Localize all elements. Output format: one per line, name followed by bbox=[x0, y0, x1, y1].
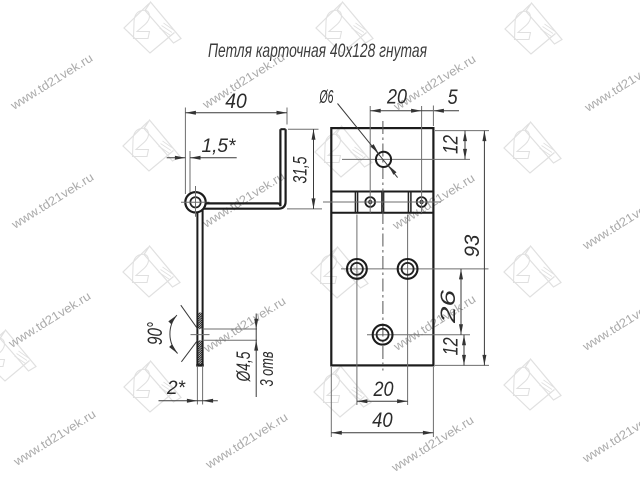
svg-text:Ø4,5: Ø4,5 bbox=[233, 351, 255, 382]
svg-text:31,5: 31,5 bbox=[290, 156, 312, 183]
svg-text:Петля карточная 40х128 гнутая: Петля карточная 40х128 гнутая bbox=[208, 40, 427, 62]
svg-text:90°: 90° bbox=[144, 322, 167, 345]
svg-text:5: 5 bbox=[448, 86, 458, 109]
svg-text:40: 40 bbox=[225, 90, 247, 113]
svg-text:12: 12 bbox=[439, 135, 462, 154]
svg-text:40: 40 bbox=[372, 409, 393, 432]
svg-text:93: 93 bbox=[461, 234, 484, 257]
svg-text:Ø6: Ø6 bbox=[319, 87, 334, 107]
svg-text:20: 20 bbox=[373, 378, 394, 401]
svg-text:2*: 2* bbox=[166, 377, 186, 399]
svg-text:26: 26 bbox=[437, 290, 460, 325]
svg-text:3 отв: 3 отв bbox=[257, 352, 277, 387]
svg-text:1,5*: 1,5* bbox=[202, 135, 237, 157]
svg-text:12: 12 bbox=[440, 337, 463, 355]
svg-text:20: 20 bbox=[386, 86, 407, 109]
